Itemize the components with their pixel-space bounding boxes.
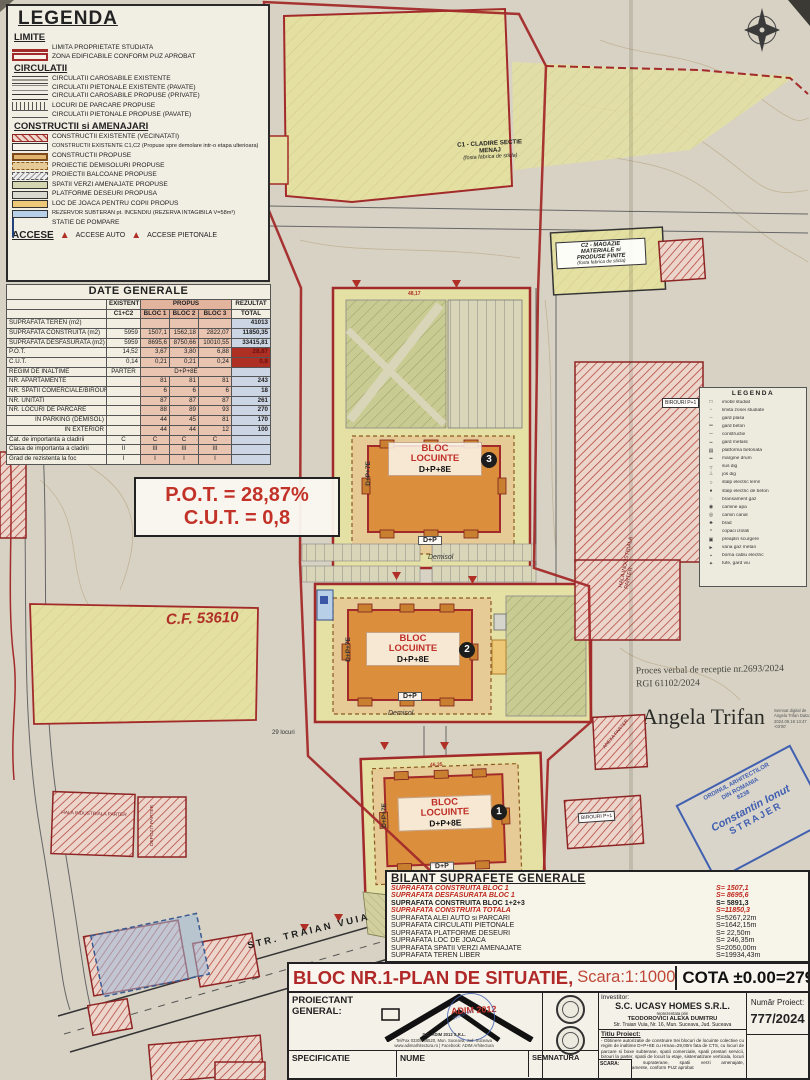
dimension-label: 46,35 [430, 762, 443, 768]
loc-joaca [492, 640, 506, 674]
table-row: Grad de rezistenta la focIIII [7, 454, 271, 464]
table-row: Clasa de importanta a cladiriiIIIIIIIIII… [7, 445, 271, 455]
block-3-number-badge: 3 [481, 452, 497, 468]
proposed-building-icon [12, 153, 48, 161]
zone-yellow-top-right [512, 62, 795, 170]
bilant-row: SUPRAFATA CONSTRUITA BLOC 1+2+3S= 5891,3 [391, 900, 804, 907]
block-3-label: BLOC LOCUINTE D+P+8E 3 [388, 442, 482, 476]
access-heading: ACCESE [12, 230, 54, 241]
bilant-row: SUPRAFATA LOC DE JOACAS= 246,35m [391, 937, 804, 944]
mini-legend-item: ▤platforma betonata [703, 447, 803, 455]
zone-edge-icon [12, 53, 48, 61]
block-3-dp-label: D+P [418, 536, 442, 545]
playground-icon [12, 200, 48, 208]
dimension-label: 48,17 [408, 291, 421, 297]
basement-projection-icon [12, 162, 48, 170]
signature-strip: SPECIFICATIE NUME SEMNATURA [289, 1050, 599, 1077]
block-1-side-label: D+P+7E [381, 803, 388, 828]
mini-legend-item: ┬sus dig [703, 463, 803, 471]
bilant-row: SUPRAFATA CONSTRUITA BLOC 1S= 1507,1 [391, 885, 804, 892]
bilant-row: SUPRAFATA CONSTRUITA TOTALAS=11850,3 [391, 907, 804, 914]
table-row: NR. APARTAMENTE818181243 [7, 377, 271, 387]
table-row: C.U.T.0,140,210,210,240,8 [7, 358, 271, 368]
investor-cell: Investitor: S.C. UCASY HOMES S.R.L. repr… [599, 993, 747, 1078]
legend-item: LOC DE JOACA PENTRU COPII PROPUS [12, 200, 264, 208]
mini-legend-item: ┴jos dig [703, 471, 803, 479]
legend-panel: LEGENDA LIMITE LIMITA PROPRIETATE STUDIA… [6, 4, 270, 282]
nume-header: NUME [397, 1051, 529, 1077]
compass-icon [744, 0, 810, 52]
access-pedestrian-icon: ▲ [131, 232, 141, 240]
block-2-label: BLOC LOCUINTE D+P+8E 2 [366, 632, 460, 666]
site-plan-sheet: LEGENDA LIMITE LIMITA PROPRIETATE STUDIA… [0, 0, 810, 1080]
legend-item: CONSTRUCTII EXISTENTE (VECINATATI) [12, 134, 264, 142]
rezervor-zone [91, 913, 210, 996]
firm-web: www.adimarhitectura.ro | Facebook: ADIM … [349, 1044, 539, 1049]
table-row: DATE GENERALE [7, 285, 271, 300]
rezervor-incendiu [317, 590, 333, 620]
pump-station-icon [12, 218, 14, 237]
mini-legend-item: ▪borna cablu electric [703, 552, 803, 560]
table-row: REGIM DE INALTIMEPARTERD+P+8E [7, 367, 271, 377]
legend-item: CIRCULATII CAROSABILE PROPUSE (PRIVATE) [12, 93, 264, 100]
table-row: IN EXTERIOR444412100 [7, 425, 271, 435]
mini-legend-item: *copaci izolati [703, 528, 803, 536]
investor-address: Str. Traian Vuia, Nr. 16, Mun. Suceava, … [599, 1022, 746, 1030]
c2-building-label: C2 - MAGAZIE MATERIALE si PRODUSE FINITE… [555, 238, 646, 270]
mini-legend-item: ◉camine apa [703, 503, 803, 511]
title-block: PROIECTANT GENERAL: ADIM 2012 33983/2011… [287, 993, 810, 1080]
bilant-row: SUPRAFATA TEREN LIBERS=19934,43m [391, 952, 804, 959]
bilant-row: SUPRAFATA ALEI AUTO si PARCARIS=5267,22m [391, 915, 804, 922]
round-stamp-1 [556, 995, 585, 1024]
green-area-bloc2 [506, 596, 586, 716]
legend-access-row: ACCESE ▲ ACCESE AUTO ▲ ACCESE PIETONALE [12, 230, 264, 241]
table-row: SUPRAFATA TEREN (m2)41013 [7, 319, 271, 329]
pedestrian-proposed-icon [12, 114, 48, 118]
mini-legend-item: ┅gard metalic [703, 438, 803, 446]
table-row: NR. SPATII COMERCIALE/BIROURI66618 [7, 387, 271, 397]
pot-value: P.O.T. = 28,87% [165, 484, 309, 507]
project-number-label: Număr Proiect: [747, 993, 808, 1007]
table-row: NR. UNITATI878787261 [7, 396, 271, 406]
block-2-demisol-label: Demisol [388, 710, 413, 717]
bilant-title: BILANT SUPRAFETE GENERALE [391, 873, 804, 885]
legend-item: CIRCULATII PIETONALE PROPUSE (PAVATE) [12, 112, 264, 119]
cut-value: C.U.T. = 0,8 [184, 507, 290, 530]
legend-item: LIMITA PROPRIETATE STUDIATA [12, 45, 264, 52]
block-3-demisol-label: Demisol [428, 554, 453, 561]
mini-legend-item: ═gard beton [703, 422, 803, 430]
plan-title-bar: BLOC NR.1-PLAN DE SITUATIE, Scara:1:1000… [287, 962, 810, 993]
balcony-projection-icon [12, 172, 48, 180]
road-existing-icon [12, 76, 48, 84]
table-row: EXISTENTPROPUSREZULTAT [7, 299, 271, 309]
mini-legend-item: ◎camin canal [703, 511, 803, 519]
water-reserve-icon [12, 210, 48, 218]
plan-cota: COTA ±0.00=279,50 [675, 966, 808, 990]
legend-item: STATIE DE POMPARE [12, 219, 264, 227]
mini-legend-item: ▣preaplin scurgere [703, 536, 803, 544]
pedestrian-existing-icon [12, 85, 48, 91]
firm-name: S.C. ADIM 2012 S.R.L. [349, 1033, 539, 1038]
parking-icon [12, 102, 48, 111]
birouri-label-1: BIROURI P+1 [662, 398, 699, 408]
parking-count-label: 29 locuri [272, 730, 295, 736]
semnatura-header: SEMNATURA [529, 1051, 599, 1077]
legend-item: PROIECTIE DEMISOLURI PROPUSE [12, 162, 264, 170]
block-2-dp-label: D+P [398, 692, 422, 701]
table-row: IN PARKING (DEMISOL)444581170 [7, 416, 271, 426]
statie-pompare [320, 596, 328, 604]
block-2-side-label: D+P+7E [345, 637, 352, 662]
proiectant-label: PROIECTANT GENERAL: [292, 995, 376, 1018]
cadastre-number: C.F. 53610 [166, 609, 239, 629]
building-c1-area [284, 9, 512, 202]
table-row: NR. LOCURI DE PARCARE888993270 [7, 406, 271, 416]
waste-platform-icon [12, 191, 48, 199]
legend-item: LOCURI DE PARCARE PROPUSE [12, 102, 264, 111]
legend-item: CONSTRUCTII PROPUSE [12, 153, 264, 161]
date-generale-table: DATE GENERALE EXISTENTPROPUSREZULTAT C1+… [6, 284, 270, 465]
legend-item: PROIECTII BALCOANE PROPUSE [12, 172, 264, 180]
plan-title: BLOC NR.1-PLAN DE SITUATIE, [289, 967, 573, 989]
limit-line-icon [12, 49, 48, 52]
mini-legend-item: ►vana gaz metan [703, 544, 803, 552]
block-3-side-label: D+P+7E [365, 461, 372, 486]
mini-legend-item: ✦tufe, gard viu [703, 560, 803, 568]
project-number-cell: Număr Proiect: 777/2024 [747, 993, 808, 1078]
block-1-label: BLOC LOCUINTE D+P+8E 1 [397, 794, 492, 831]
table-row: SUPRAFATA DESFASURATA (m2)59598695,68750… [7, 338, 271, 348]
project-number-value: 777/2024 [747, 1007, 808, 1035]
existing-c1c2-icon [12, 143, 48, 151]
bilant-row: SUPRAFATA DESFASURATA BLOC 1S= 8695,6 [391, 892, 804, 899]
legend-item: REZERVOR SUBTERAN pt. INCENDIU (REZERVA … [12, 210, 264, 218]
legend-section-limite: LIMITE [14, 32, 264, 43]
table-row: Cat. de importanta a cladiriiCCCC [7, 435, 271, 445]
investor-name: S.C. UCASY HOMES S.R.L. [599, 1002, 746, 1011]
scale-cell: SCARA: [599, 1059, 632, 1078]
bilant-row: SUPRAFATA PLATFORME DESEURIS= 22,50m [391, 930, 804, 937]
block-2-number-badge: 2 [459, 642, 475, 658]
mini-legend-item: ━margine drum [703, 455, 803, 463]
mini-legend-item: ◌bransament gaz [703, 495, 803, 503]
mini-legend-item: ─constructie [703, 430, 803, 438]
pot-cut-indicator: P.O.T. = 28,87% C.U.T. = 0,8 [134, 477, 340, 537]
mini-legend-panel: LEGENDA □imobil studiat ▫limita zonei st… [699, 387, 807, 587]
existing-building-icon [12, 134, 48, 142]
mini-legend-item: ┄gard plasa [703, 414, 803, 422]
mini-legend-item: □imobil studiat [703, 398, 803, 406]
road-proposed-icon [12, 94, 48, 100]
mini-legend-item: ●stalp electric de beton [703, 487, 803, 495]
mini-legend-item: ○stalp electric lemn [703, 479, 803, 487]
table-row: C1+C2BLOC 1BLOC 2BLOC 3TOTAL [7, 309, 271, 319]
table-row: P.O.T.14,523,673,806,8828,87 [7, 348, 271, 358]
legend-item: CONSTRUCTII EXISTENTE C1,C2 (Propuse spr… [12, 143, 264, 151]
depozit-label: DEPOZIT PARTER [150, 805, 155, 846]
legend-item: SPATII VERZI AMENAJATE PROPUSE [12, 181, 264, 189]
parking-bloc3 [448, 300, 522, 428]
bilant-row: SUPRAFATA SPATII VERZI AMENAJATES=2050,0… [391, 945, 804, 952]
table-row: SUPRAFATA CONSTRUITA (m2)59591507,11562,… [7, 328, 271, 338]
legend-item: CIRCULATII CAROSABILE EXISTENTE [12, 76, 264, 84]
plan-scale: Scara:1:1000 [573, 968, 675, 987]
table-title: DATE GENERALE [7, 285, 271, 300]
access-auto-icon: ▲ [60, 232, 70, 240]
legend-item: CIRCULATII PIETONALE EXISTENTE (PAVATE) [12, 85, 264, 92]
mini-legend-title: LEGENDA [703, 390, 803, 397]
platforma-deseuri [494, 614, 506, 630]
project-title-label: Titlu Proiect: [599, 1030, 746, 1038]
mini-legend-item: ▫limita zonei studiate [703, 406, 803, 414]
green-space-icon [12, 181, 48, 189]
legend-item: ZONA EDIFICABILE CONFORM PUZ APROBAT [12, 53, 264, 61]
mini-legend-item: ♣brad [703, 519, 803, 527]
legend-title: LEGENDA [18, 8, 264, 30]
legend-section-constructii: CONSTRUCTII si AMENAJARI [14, 121, 264, 132]
specificatie-header: SPECIFICATIE [289, 1051, 397, 1077]
legend-section-circulatii: CIRCULATII [14, 63, 264, 74]
bilant-panel: BILANT SUPRAFETE GENERALE SUPRAFATA CONS… [385, 870, 810, 963]
legend-item: PLATFORME DESEURI PROPUSA [12, 191, 264, 199]
bilant-row: SUPRAFATA CIRCULATII PIETONALES=1642,15m [391, 922, 804, 929]
